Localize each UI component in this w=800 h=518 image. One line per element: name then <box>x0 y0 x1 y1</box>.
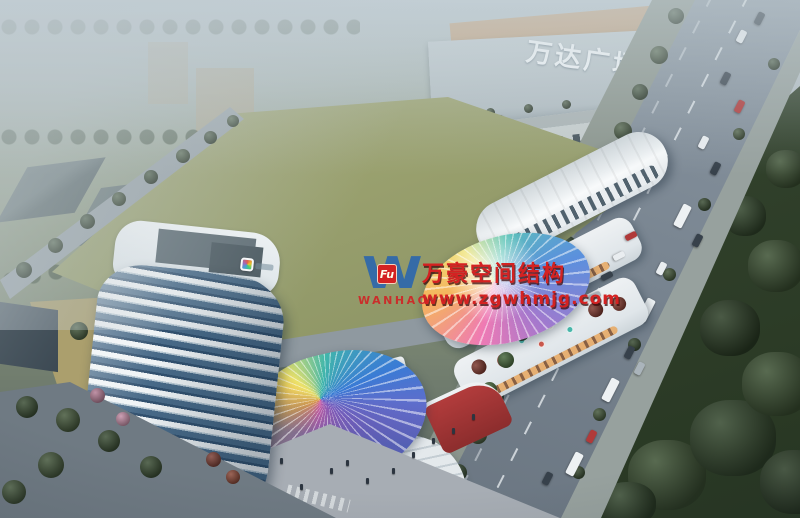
hazy-highrise <box>148 42 188 104</box>
tree <box>632 84 648 100</box>
tree-cluster <box>742 352 800 416</box>
tree <box>38 452 64 478</box>
person-marker <box>280 458 283 464</box>
tree <box>48 238 63 253</box>
watermark: W Fu WANHAO 万豪空间结构 www.zgwhmjg.com <box>358 252 583 316</box>
tree <box>176 149 190 163</box>
person-marker <box>330 468 333 474</box>
tree-autumn <box>469 357 489 377</box>
person-marker <box>300 484 303 490</box>
treeline <box>0 16 360 36</box>
person-marker <box>346 460 349 466</box>
tree <box>663 268 676 281</box>
tree <box>698 198 711 211</box>
tree-autumn <box>206 452 221 467</box>
logo-name: WANHAO <box>358 294 429 307</box>
tree-cluster <box>766 150 800 188</box>
tree <box>733 128 745 140</box>
tree-cluster <box>748 240 800 292</box>
tree <box>144 170 158 184</box>
tree <box>593 408 606 421</box>
tree-blossom <box>90 388 105 403</box>
watermark-text: 万豪空间结构 www.zgwhmjg.com <box>422 256 621 309</box>
tree <box>56 408 80 432</box>
umbrella <box>565 325 574 334</box>
watermark-url: www.zgwhmjg.com <box>422 289 621 309</box>
person-marker <box>412 452 415 458</box>
tree <box>650 46 668 64</box>
person-marker <box>472 414 475 420</box>
tree-blossom <box>116 412 130 426</box>
tree <box>70 322 88 340</box>
aerial-rendering: 万达广场 <box>0 0 800 518</box>
tree <box>524 104 533 113</box>
tree <box>98 430 120 452</box>
umbrella <box>537 339 546 348</box>
tree <box>768 58 780 70</box>
warehouse <box>0 302 58 372</box>
tree-cluster <box>700 300 760 356</box>
tree-autumn <box>226 470 240 484</box>
tree <box>227 115 239 127</box>
tower-logo-icon <box>240 257 254 271</box>
person-marker <box>392 468 395 474</box>
watermark-company: 万豪空间结构 <box>422 256 621 288</box>
tree <box>2 480 26 504</box>
tree <box>80 214 95 229</box>
tree <box>204 131 217 144</box>
person-marker <box>452 428 455 434</box>
tree <box>668 8 684 24</box>
tree <box>140 456 162 478</box>
logo-red-badge: Fu <box>377 264 397 284</box>
person-marker <box>432 438 435 444</box>
tree <box>16 396 38 418</box>
person-marker <box>366 478 369 484</box>
tree <box>562 100 571 109</box>
tree <box>16 262 32 278</box>
tree <box>498 352 514 368</box>
tree <box>112 192 126 206</box>
